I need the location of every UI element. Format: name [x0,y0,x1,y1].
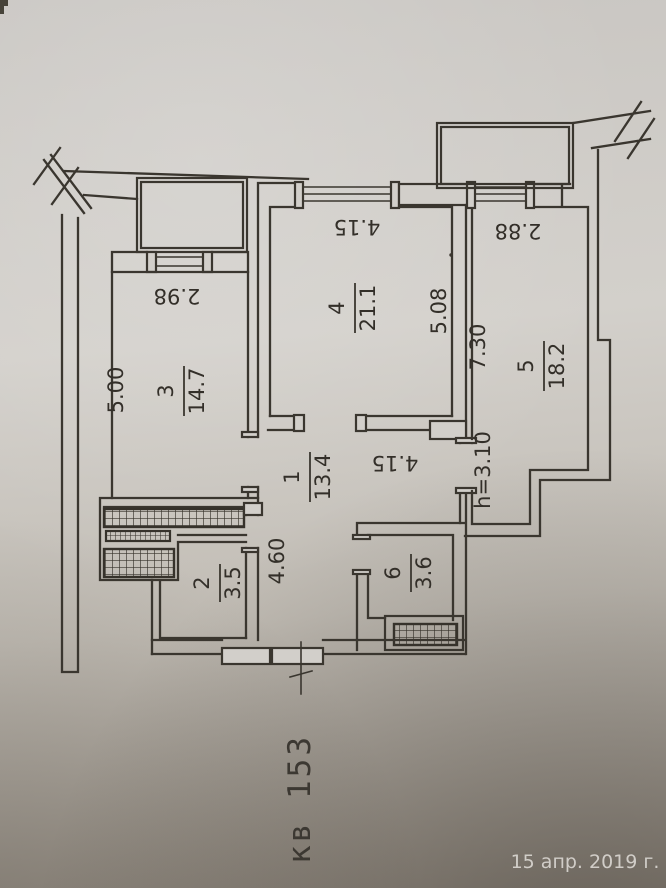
svg-text:3.6: 3.6 [412,556,436,589]
svg-text:3: 3 [154,384,178,397]
svg-text:18.2: 18.2 [545,343,569,390]
room4-window-jamb [391,182,399,208]
room6-door-jamb [353,535,370,539]
svg-text:14.7: 14.7 [185,368,209,415]
svg-text:3.5: 3.5 [221,566,245,599]
svg-text:2: 2 [190,576,214,589]
room5-balcony [437,123,573,188]
room3-door-jamb [242,432,258,437]
vent-shaft-a [104,509,244,527]
svg-text:13.4: 13.4 [311,454,335,501]
entrance-door [272,648,323,664]
room6-door-jamb [353,570,370,574]
room-5-label: 5 18.2 [514,341,569,391]
svg-text:21.1: 21.1 [356,285,380,332]
vent-shaft-b [106,531,170,541]
room4-window [303,187,391,201]
dim-corridor-length: 4.60 [265,538,289,585]
room3-window [156,257,203,266]
room-2-label: 2 3.5 [190,564,245,602]
dim-ceiling-height: h=3.10 [471,431,495,509]
room-1-label: 1 13.4 [280,452,335,502]
room4-window-jamb [295,182,303,208]
labels: 2.98 4.15 2.88 4.15 5.00 5.08 7.30 h=3.1… [104,215,569,864]
entrance-door [222,648,270,664]
floor-plan-svg: 2.98 4.15 2.88 4.15 5.00 5.08 7.30 h=3.1… [0,0,666,888]
room3-window-jamb [203,252,212,272]
break-mark-top-right [573,102,654,158]
floor-plan-photo: 2.98 4.15 2.88 4.15 5.00 5.08 7.30 h=3.1… [0,0,666,888]
dim-room4-length: 5.08 [427,288,451,335]
dim-balcony-width: 2.88 [495,219,542,243]
date-overlay: 15 апр. 2019 г. [511,851,660,873]
room5-window [475,187,526,201]
dim-room3-window: 2.98 [154,284,201,308]
apartment-number-caption: кв 153 [282,734,318,864]
svg-text:1: 1 [280,470,304,483]
dim-room4-width: 4.15 [334,215,381,239]
room4-door-jamb [356,415,366,431]
dim-room3-length: 5.00 [104,367,128,414]
room4-door-jamb [294,415,304,431]
svg-text:4: 4 [325,301,349,314]
room3-balcony [137,178,247,252]
vent-shaft-c [104,549,174,577]
room-3-label: 3 14.7 [154,366,209,416]
room2-door-jamb [242,548,258,552]
svg-text:5: 5 [514,359,538,372]
dim-hall-width: 4.15 [372,451,419,475]
room2-door-pier [244,503,262,515]
room6-vent-shaft [394,624,457,645]
room5-window-jamb [526,182,534,208]
dim-room5-length: 7.30 [466,324,490,371]
room-4-label: 4 21.1 [325,283,380,333]
svg-text:6: 6 [381,566,405,579]
room3-door-jamb [242,487,258,492]
room-6-label: 6 3.6 [381,554,436,592]
room3-window-jamb [147,252,156,272]
room5-window-jamb [467,182,475,208]
photo-corner-artifact [0,0,8,14]
ink-dot [449,253,452,256]
hall-room5-pier [430,421,466,439]
